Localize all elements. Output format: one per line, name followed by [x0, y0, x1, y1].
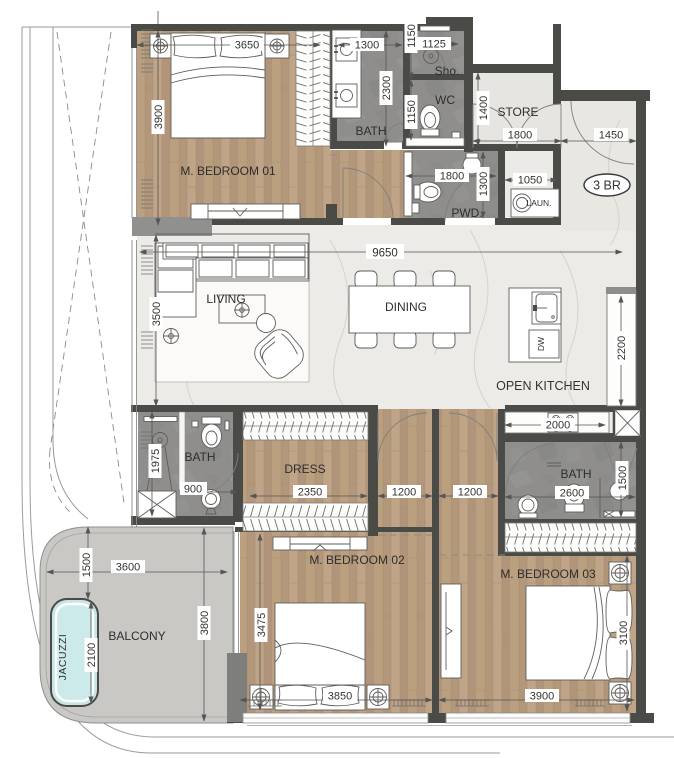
svg-text:DRESS: DRESS: [284, 462, 325, 476]
svg-text:STORE: STORE: [497, 105, 538, 119]
svg-text:BATH: BATH: [355, 124, 386, 138]
svg-text:3100: 3100: [618, 621, 630, 645]
svg-text:WC: WC: [435, 93, 455, 107]
svg-text:3900: 3900: [530, 691, 554, 703]
svg-text:3500: 3500: [151, 302, 163, 326]
svg-text:OPEN KITCHEN: OPEN KITCHEN: [496, 379, 590, 393]
svg-text:M. BEDROOM 01: M. BEDROOM 01: [180, 164, 276, 178]
svg-text:1150: 1150: [406, 24, 418, 48]
svg-text:3900: 3900: [153, 105, 165, 129]
svg-text:1500: 1500: [617, 466, 629, 490]
svg-text:1050: 1050: [518, 175, 542, 187]
svg-text:Sho.: Sho.: [435, 64, 460, 78]
svg-text:JACUZZI: JACUZZI: [57, 634, 69, 681]
svg-text:2300: 2300: [381, 76, 393, 100]
svg-text:3600: 3600: [116, 562, 140, 574]
svg-text:1800: 1800: [508, 130, 532, 142]
svg-text:1300: 1300: [355, 40, 379, 52]
svg-text:2200: 2200: [616, 336, 628, 360]
svg-text:2100: 2100: [86, 643, 98, 667]
svg-text:1450: 1450: [599, 130, 623, 142]
svg-text:1800: 1800: [440, 171, 464, 183]
svg-text:1200: 1200: [392, 487, 416, 499]
svg-text:1125: 1125: [422, 39, 446, 51]
svg-text:3 BR: 3 BR: [593, 179, 621, 193]
svg-text:1200: 1200: [458, 487, 482, 499]
svg-text:1500: 1500: [81, 553, 93, 577]
svg-text:DINING: DINING: [385, 300, 427, 314]
svg-text:2000: 2000: [546, 420, 570, 432]
svg-text:LAUN.: LAUN.: [526, 198, 551, 208]
svg-text:BATH: BATH: [184, 450, 215, 464]
svg-text:3850: 3850: [328, 691, 352, 703]
svg-text:1150: 1150: [406, 100, 418, 124]
svg-text:3650: 3650: [235, 40, 259, 52]
svg-text:M. BEDROOM 03: M. BEDROOM 03: [500, 567, 596, 581]
svg-text:1300: 1300: [478, 172, 490, 196]
svg-text:9650: 9650: [372, 248, 398, 260]
svg-text:3475: 3475: [256, 613, 268, 637]
svg-text:3800: 3800: [199, 611, 211, 635]
svg-text:LIVING: LIVING: [206, 292, 245, 306]
svg-text:2600: 2600: [560, 488, 584, 500]
svg-text:1400: 1400: [478, 96, 490, 120]
svg-text:M. BEDROOM 02: M. BEDROOM 02: [309, 553, 405, 567]
svg-text:2350: 2350: [298, 487, 322, 499]
svg-text:DW: DW: [536, 337, 546, 351]
svg-text:1975: 1975: [150, 449, 162, 473]
svg-text:PWD.: PWD.: [451, 206, 482, 220]
svg-text:BALCONY: BALCONY: [108, 629, 165, 643]
svg-text:BATH: BATH: [560, 467, 591, 481]
svg-text:900: 900: [184, 484, 202, 496]
